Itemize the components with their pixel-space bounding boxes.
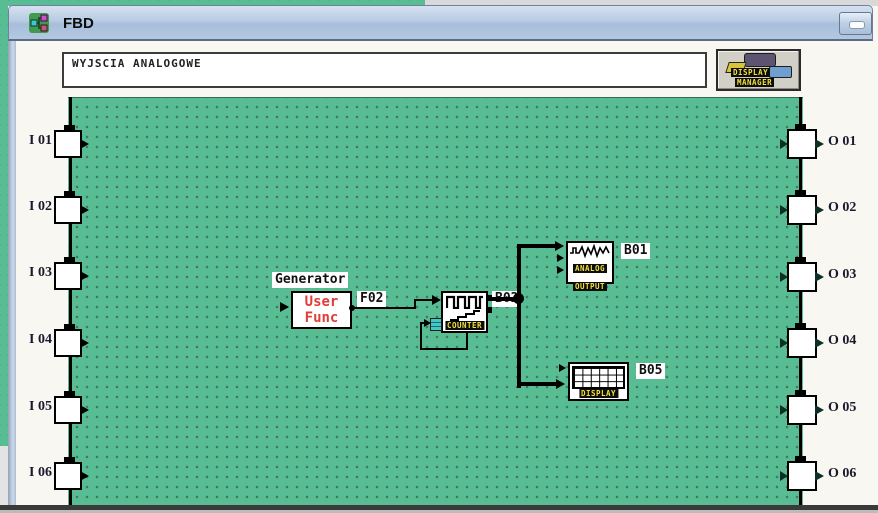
output-connector-icon	[815, 205, 824, 215]
wire-arrowhead-icon	[555, 241, 564, 251]
output-label: O 05	[828, 400, 862, 416]
display-manager-label-line2: MANAGER	[735, 78, 774, 87]
block-ref-label-b01[interactable]: B01	[621, 243, 650, 259]
counter-name-label: COUNTER	[445, 321, 484, 330]
output-label: O 01	[828, 134, 862, 150]
output-connector-icon	[80, 405, 89, 415]
input-block-i04[interactable]	[54, 329, 82, 357]
block-tab	[64, 324, 75, 329]
output-block-o04[interactable]	[787, 328, 817, 358]
block-tab	[795, 323, 806, 328]
wire-label-f02[interactable]: F02	[357, 291, 386, 307]
output-connector-icon	[80, 471, 89, 481]
feedback-wire	[420, 348, 468, 350]
block-tab	[64, 457, 75, 462]
wire-f02	[414, 299, 434, 301]
fbd-window-icon	[29, 13, 49, 33]
window-title: FBD	[63, 15, 94, 32]
analog-waveform-icon	[569, 244, 611, 258]
output-connector-icon	[815, 338, 824, 348]
wire-b02	[517, 244, 556, 248]
block-ref-label-b05[interactable]: B05	[636, 363, 665, 379]
user-func-line2: Func	[293, 310, 350, 326]
input-arrow-icon	[557, 266, 564, 274]
input-connector-icon	[780, 471, 788, 481]
block-tab	[795, 257, 806, 262]
fbd-editor-screen: FBD DISPLAY MANAGER I 01 I 02 I 03 I 04 …	[0, 0, 878, 513]
analog-output-block[interactable]: ANALOG OUTPUT	[566, 241, 614, 284]
input-label: I 04	[18, 332, 52, 348]
counter-block[interactable]: COUNTER	[441, 291, 488, 333]
wire-arrowhead-icon	[432, 295, 441, 305]
output-block-o06[interactable]	[787, 461, 817, 491]
analog-output-label-line2: OUTPUT	[573, 282, 607, 291]
block-tab	[795, 190, 806, 195]
block-tab	[795, 390, 806, 395]
input-arrow-icon	[557, 254, 564, 262]
output-label: O 06	[828, 466, 862, 482]
input-label: I 01	[18, 133, 52, 149]
output-label: O 03	[828, 267, 862, 283]
display-name-label: DISPLAY	[579, 389, 618, 398]
input-connector-icon	[780, 338, 788, 348]
output-connector-icon	[815, 272, 824, 282]
input-block-i05[interactable]	[54, 396, 82, 424]
output-connector-icon	[80, 139, 89, 149]
block-tab	[795, 456, 806, 461]
output-connector-icon	[80, 338, 89, 348]
input-connector-icon	[780, 205, 788, 215]
step-counter-icon	[449, 309, 481, 321]
output-connector-icon	[815, 405, 824, 415]
display-grid-icon	[572, 366, 625, 389]
output-connector-icon	[815, 139, 824, 149]
background-canvas-strip-left	[0, 6, 8, 446]
comment-input[interactable]	[62, 52, 707, 88]
block-tab	[64, 125, 75, 130]
output-connector-icon	[815, 471, 824, 481]
minimize-button[interactable]	[839, 12, 872, 35]
display-block[interactable]: DISPLAY	[568, 362, 629, 401]
monitor-icon	[744, 53, 776, 67]
display-manager-button[interactable]: DISPLAY MANAGER	[716, 49, 801, 91]
output-pin	[486, 307, 492, 313]
wire-arrowhead-icon	[556, 379, 565, 389]
block-tab	[64, 191, 75, 196]
output-block-o01[interactable]	[787, 129, 817, 159]
wire-arrowhead-icon	[424, 319, 431, 327]
input-connector-icon	[780, 139, 788, 149]
input-arrow-icon	[280, 302, 289, 312]
output-label: O 04	[828, 333, 862, 349]
analog-output-label-line1: ANALOG	[573, 264, 607, 273]
input-label: I 05	[18, 399, 52, 415]
output-connector-icon	[80, 205, 89, 215]
counter-mode-badge	[430, 318, 442, 331]
block-tab	[64, 391, 75, 396]
input-label: I 06	[18, 465, 52, 481]
input-arrow-icon	[559, 364, 566, 372]
input-connector-icon	[780, 405, 788, 415]
wire-b02	[517, 244, 521, 388]
minimize-icon	[849, 21, 865, 29]
block-tab	[795, 124, 806, 129]
wire-f02	[352, 307, 416, 309]
input-block-i01[interactable]	[54, 130, 82, 158]
feedback-wire	[420, 322, 422, 350]
input-connector-icon	[780, 272, 788, 282]
output-block-o02[interactable]	[787, 195, 817, 225]
input-label: I 03	[18, 265, 52, 281]
background-strip-left-low	[0, 446, 8, 513]
display-manager-label-line1: DISPLAY	[731, 68, 770, 77]
input-block-i02[interactable]	[54, 196, 82, 224]
wire-b02	[517, 382, 557, 386]
window-titlebar[interactable]: FBD	[8, 5, 873, 41]
window-left-border	[8, 41, 16, 505]
input-block-i06[interactable]	[54, 462, 82, 490]
user-func-line1: User	[293, 294, 350, 310]
input-label: I 02	[18, 199, 52, 215]
block-tab	[64, 257, 75, 262]
output-block-o03[interactable]	[787, 262, 817, 292]
square-wave-icon	[446, 295, 484, 309]
monitor-icon-small	[769, 66, 792, 78]
output-block-o05[interactable]	[787, 395, 817, 425]
input-block-i03[interactable]	[54, 262, 82, 290]
output-connector-icon	[80, 271, 89, 281]
user-func-block[interactable]: User Func	[291, 291, 352, 329]
generator-caption[interactable]: Generator	[272, 272, 348, 288]
output-label: O 02	[828, 200, 862, 216]
input-bus-line	[69, 97, 72, 505]
